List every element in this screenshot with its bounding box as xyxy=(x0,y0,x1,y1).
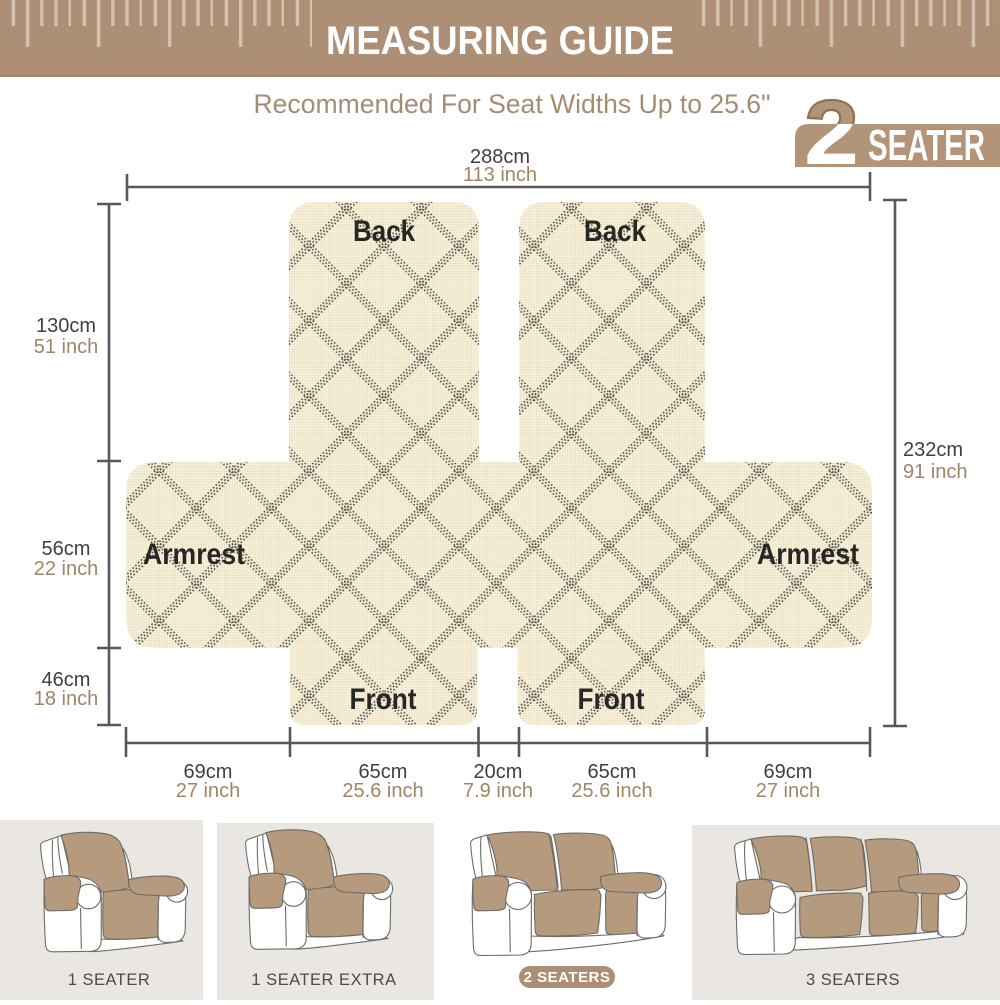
svg-text:56cm: 56cm xyxy=(42,538,91,560)
svg-text:232cm: 232cm xyxy=(903,439,963,461)
svg-text:7.9 inch: 7.9 inch xyxy=(463,780,533,802)
svg-text:25.6 inch: 25.6 inch xyxy=(571,780,652,802)
svg-text:22 inch: 22 inch xyxy=(34,558,99,580)
svg-text:Front: Front xyxy=(350,683,417,716)
svg-text:Recommended For Seat Widths Up: Recommended For Seat Widths Up to 25.6" xyxy=(254,89,771,119)
svg-text:25.6 inch: 25.6 inch xyxy=(342,780,423,802)
svg-text:Armrest: Armrest xyxy=(143,538,245,571)
svg-text:2 SEATERS: 2 SEATERS xyxy=(524,969,611,986)
svg-text:3 SEATERS: 3 SEATERS xyxy=(806,971,900,989)
svg-text:18 inch: 18 inch xyxy=(34,688,99,710)
svg-text:1 SEATER: 1 SEATER xyxy=(68,971,151,989)
svg-text:27 inch: 27 inch xyxy=(756,780,821,802)
svg-text:SEATER: SEATER xyxy=(868,121,985,170)
svg-text:1 SEATER EXTRA: 1 SEATER EXTRA xyxy=(251,971,396,989)
svg-text:Back: Back xyxy=(584,215,646,248)
svg-text:27 inch: 27 inch xyxy=(176,780,241,802)
svg-text:Back: Back xyxy=(353,215,415,248)
svg-text:51 inch: 51 inch xyxy=(34,336,99,358)
svg-text:113 inch: 113 inch xyxy=(463,164,537,186)
svg-text:MEASURING GUIDE: MEASURING GUIDE xyxy=(326,19,674,63)
svg-text:Front: Front xyxy=(578,683,645,716)
svg-text:91 inch: 91 inch xyxy=(903,461,968,483)
svg-text:Armrest: Armrest xyxy=(757,538,859,571)
svg-text:130cm: 130cm xyxy=(36,315,96,337)
